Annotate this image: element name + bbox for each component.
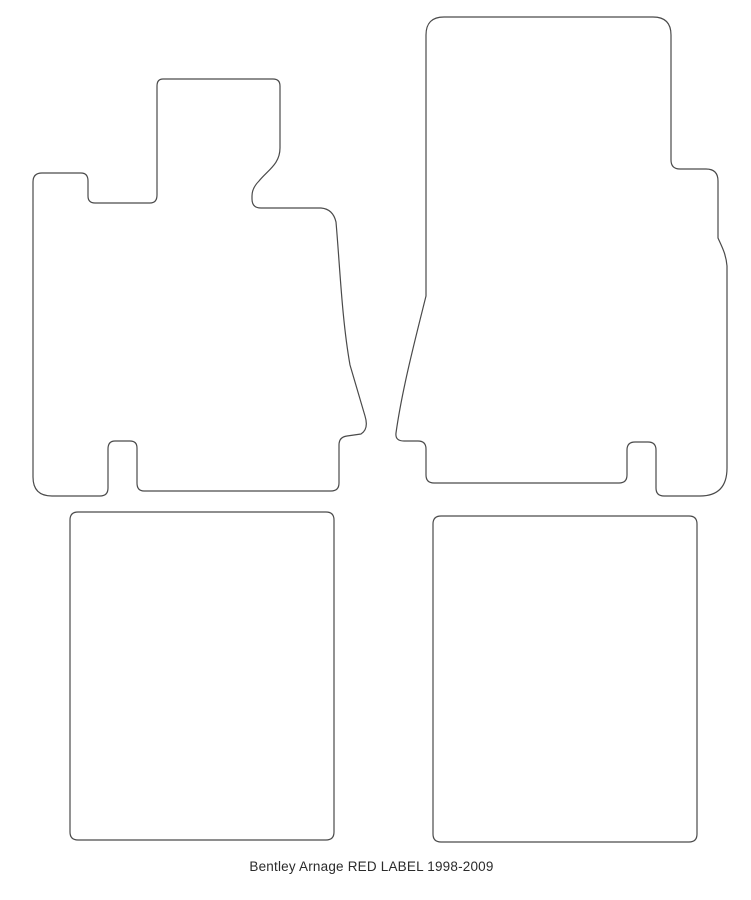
front-left-mat-outline	[33, 79, 366, 496]
car-mat-set-diagram	[0, 0, 751, 900]
rear-right-mat-outline	[433, 516, 697, 842]
front-right-mat-outline	[396, 17, 727, 496]
rear-left-mat-outline	[70, 512, 334, 840]
diagram-caption: Bentley Arnage RED LABEL 1998-2009	[0, 859, 743, 874]
mat-template-page: Bentley Arnage RED LABEL 1998-2009	[0, 0, 751, 900]
